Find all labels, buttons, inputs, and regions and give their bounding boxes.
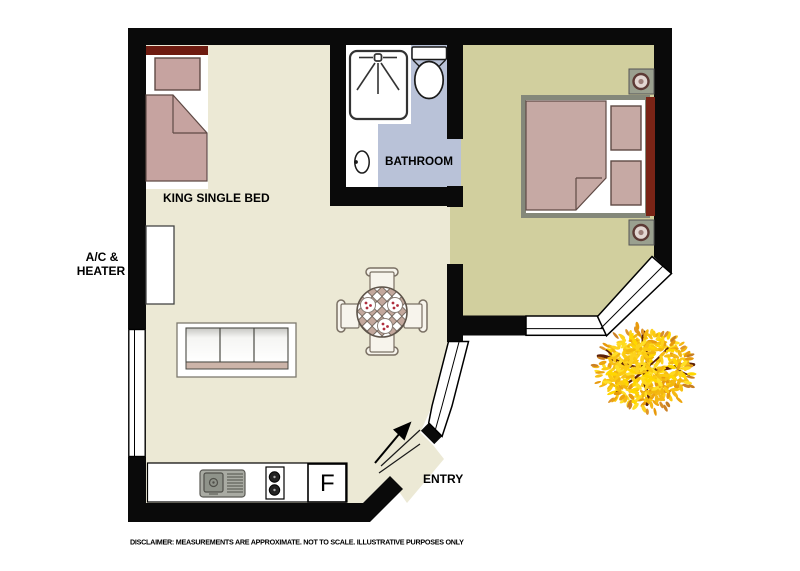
svg-text:ENTRY: ENTRY xyxy=(423,472,463,486)
svg-text:A/C &: A/C & xyxy=(86,250,119,264)
svg-text:DISCLAIMER: MEASUREMENTS ARE A: DISCLAIMER: MEASUREMENTS ARE APPROXIMATE… xyxy=(130,538,464,547)
svg-text:KING SINGLE BED: KING SINGLE BED xyxy=(163,191,270,205)
svg-text:F: F xyxy=(320,470,335,497)
svg-text:BATHROOM: BATHROOM xyxy=(385,155,453,168)
svg-text:HEATER: HEATER xyxy=(77,264,126,278)
